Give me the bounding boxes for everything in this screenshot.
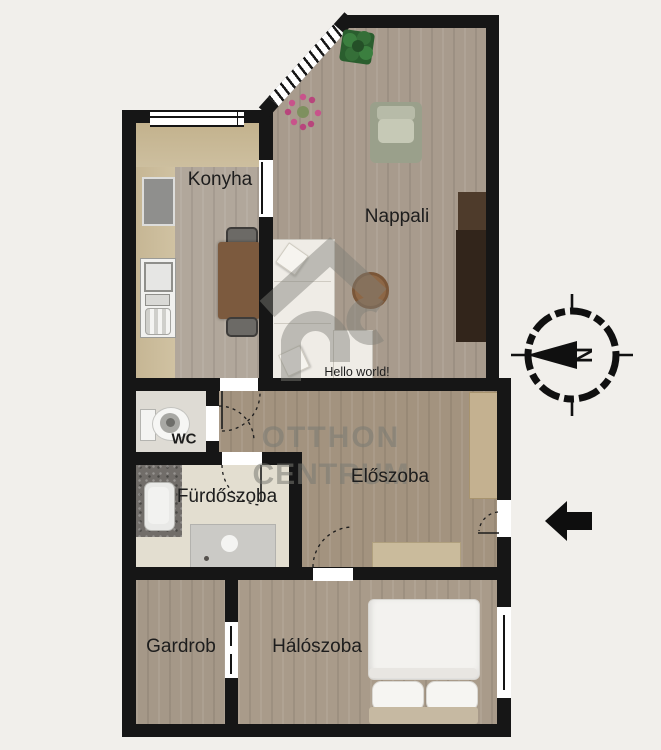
- room-label-eloszoba: Előszoba: [351, 466, 429, 488]
- plant-icon: [339, 29, 375, 65]
- watermark-logo: [267, 252, 380, 381]
- room-label-konyha: Konyha: [188, 169, 252, 191]
- room-label-nappali: Nappali: [365, 206, 429, 228]
- compass-icon: N: [511, 294, 633, 416]
- watermark-line1: OTTHON: [262, 421, 401, 455]
- entrance-arrow-icon: [545, 501, 592, 541]
- room-label-wc: WC: [172, 431, 197, 448]
- compass-north-letter: N: [572, 347, 597, 363]
- floor-plan: N OTTHON CENTRUM Konyha Nappali: [0, 0, 661, 750]
- hello-world-annotation: Hello world!: [324, 365, 389, 379]
- room-label-haloszoba: Hálószoba: [272, 636, 362, 658]
- flower-icon: [285, 94, 321, 130]
- room-label-furdoszoba: Fürdőszoba: [177, 486, 277, 508]
- room-label-gardrob: Gardrob: [146, 636, 216, 658]
